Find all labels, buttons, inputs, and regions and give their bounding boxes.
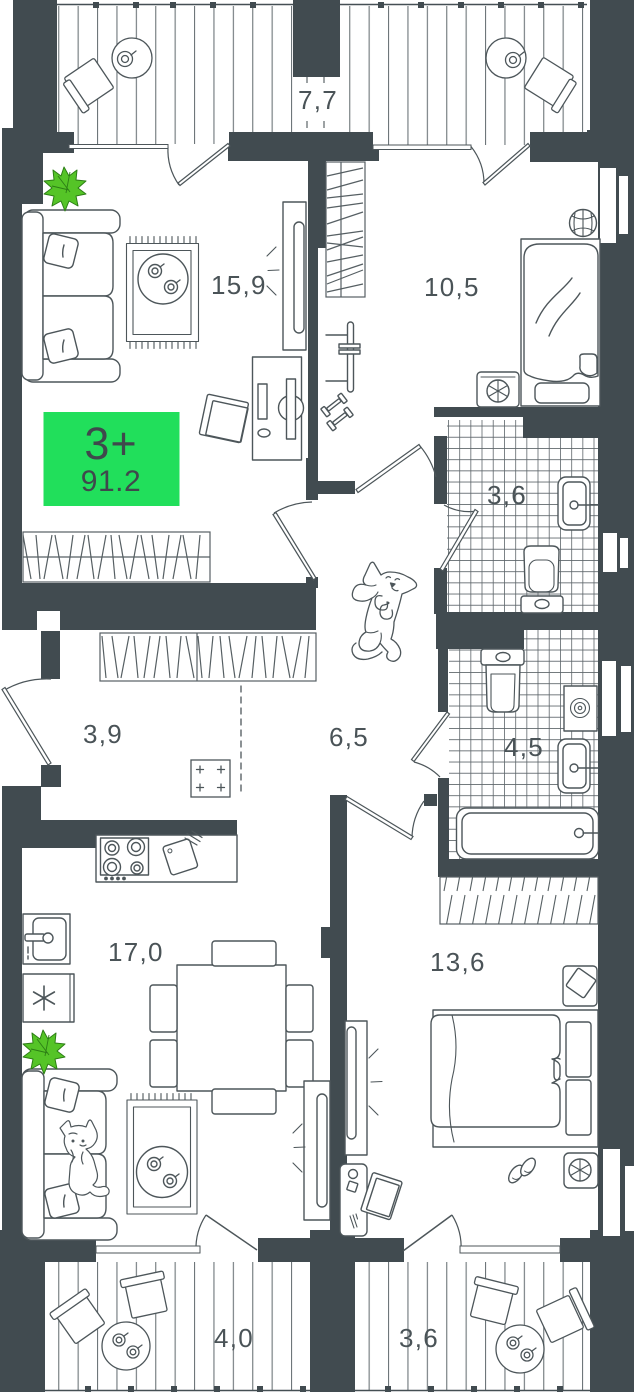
svg-text:15,9: 15,9 [211,270,267,300]
svg-text:3+: 3+ [84,418,137,469]
svg-text:6,5: 6,5 [329,722,369,752]
svg-text:7,7: 7,7 [298,85,338,115]
svg-text:3,6: 3,6 [487,480,527,510]
svg-text:10,5: 10,5 [424,272,480,302]
svg-text:17,0: 17,0 [108,937,164,967]
svg-text:91.2: 91.2 [81,465,141,498]
svg-text:4,0: 4,0 [214,1323,254,1353]
svg-text:13,6: 13,6 [430,947,486,977]
svg-text:3,9: 3,9 [83,719,123,749]
svg-text:4,5: 4,5 [504,732,544,762]
svg-text:3,6: 3,6 [399,1323,439,1353]
